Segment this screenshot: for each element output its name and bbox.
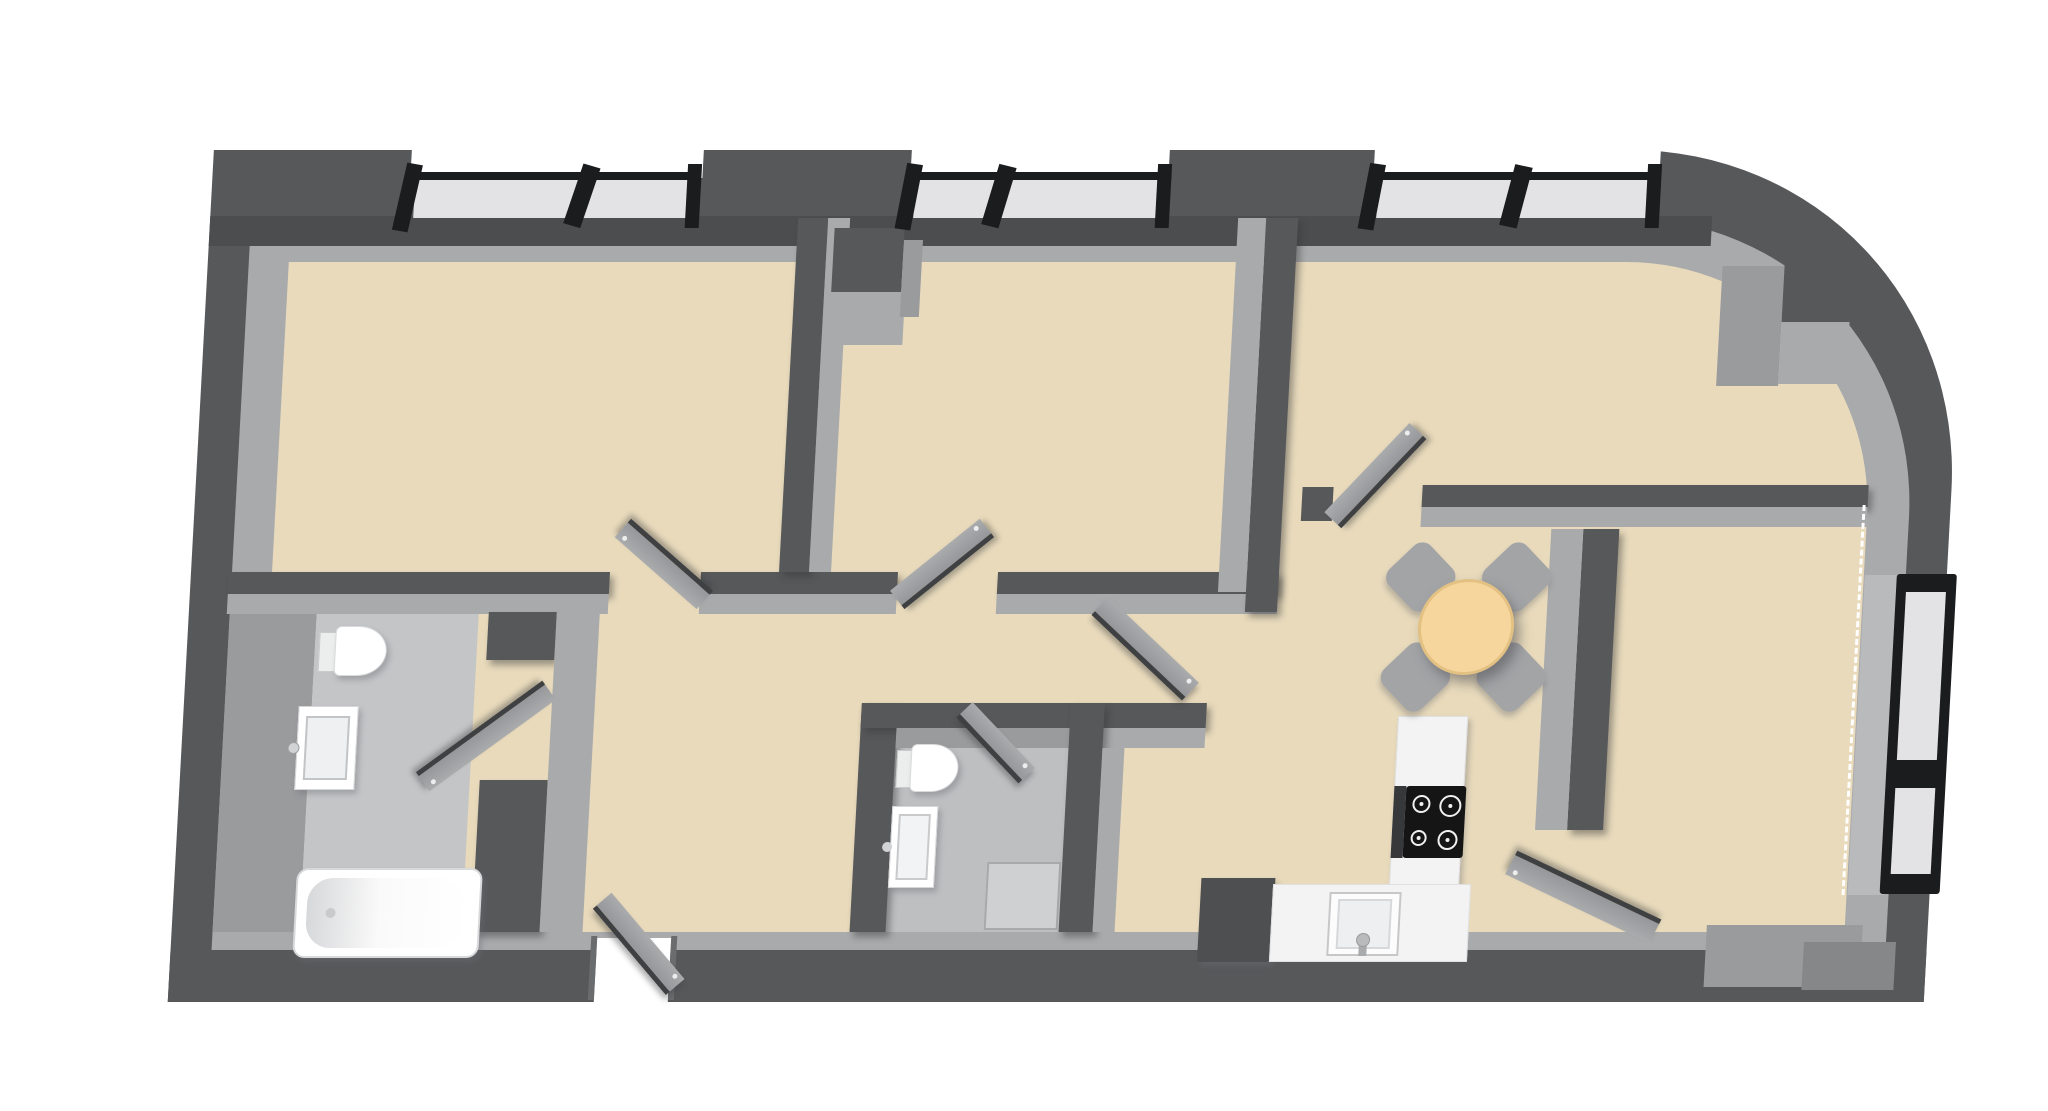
window-1-glass bbox=[413, 180, 695, 218]
chimney-right-west-face bbox=[1716, 266, 1784, 386]
window-2-glass bbox=[913, 180, 1165, 218]
face-hall-north-a bbox=[227, 594, 609, 614]
iw-wc-north bbox=[861, 703, 1207, 728]
face-wc-north-east bbox=[1102, 728, 1205, 748]
iw-bath-east-upper bbox=[486, 612, 557, 660]
iw-living-south bbox=[1422, 485, 1869, 507]
right-window-glass-lower bbox=[1891, 788, 1936, 874]
floorplan-scene bbox=[0, 0, 2048, 1111]
chimney-left-south-face bbox=[828, 292, 905, 345]
floorplan-canvas bbox=[0, 0, 2048, 1111]
top-sill-strip bbox=[209, 216, 1713, 246]
iw-hall-north-b bbox=[700, 572, 898, 594]
window-1-frameline bbox=[411, 172, 699, 180]
fridge bbox=[1197, 878, 1276, 962]
chimney-left-top bbox=[831, 228, 904, 292]
wc-shower-tray bbox=[984, 862, 1062, 930]
balcony-step-outer bbox=[1801, 942, 1896, 990]
iw-bath-east-lower bbox=[472, 780, 548, 932]
chimney-right-top bbox=[1782, 250, 1854, 322]
chimney-right-south-face bbox=[1778, 322, 1849, 384]
face-hall-north-b bbox=[699, 594, 897, 614]
face-hall-north-c bbox=[996, 594, 1278, 614]
vanity-basin-bathroom bbox=[303, 716, 350, 780]
washbasin-inner-wc bbox=[895, 814, 931, 880]
face-living-south bbox=[1420, 507, 1867, 527]
iw-hall-north-a bbox=[228, 572, 610, 594]
window-2-frameline bbox=[911, 172, 1171, 180]
